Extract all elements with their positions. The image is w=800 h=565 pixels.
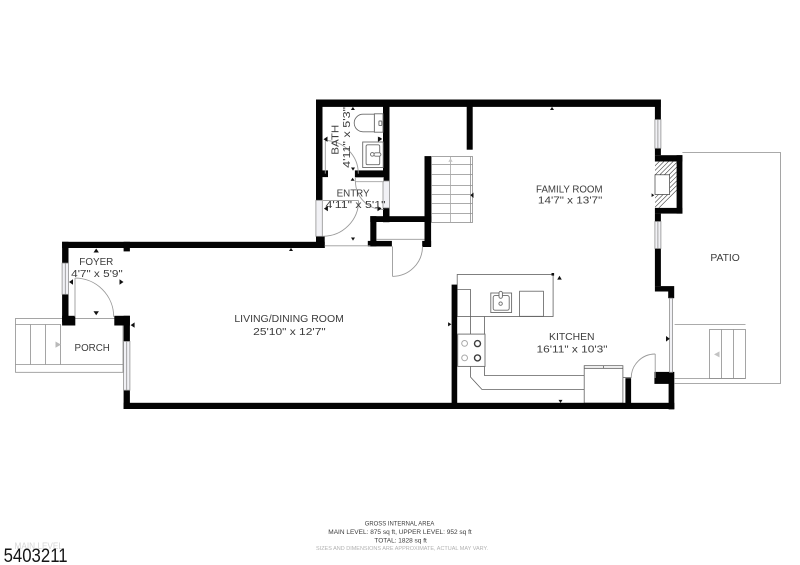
svg-text:LIVING/DINING ROOM: LIVING/DINING ROOM: [234, 314, 344, 325]
svg-text:4'11" x 5'1": 4'11" x 5'1": [326, 200, 387, 211]
svg-text:SIZES AND DIMENSIONS ARE APPRO: SIZES AND DIMENSIONS ARE APPROXIMATE, AC…: [316, 546, 488, 552]
svg-text:25'10" x 12'7": 25'10" x 12'7": [253, 327, 326, 338]
svg-text:14'7" x 13'7": 14'7" x 13'7": [538, 195, 603, 206]
svg-text:ENTRY: ENTRY: [337, 188, 370, 199]
svg-text:16'11" x 10'3": 16'11" x 10'3": [537, 344, 609, 355]
svg-text:MAIN LEVEL: 875 sq ft, UPPER L: MAIN LEVEL: 875 sq ft, UPPER LEVEL: 952 …: [328, 529, 472, 536]
svg-text:KITCHEN: KITCHEN: [549, 332, 595, 343]
svg-text:BATH: BATH: [330, 125, 341, 155]
svg-text:5403211: 5403211: [4, 545, 68, 565]
svg-text:4'11" x 5'3": 4'11" x 5'3": [342, 106, 353, 168]
svg-text:FAMILY ROOM: FAMILY ROOM: [536, 184, 603, 195]
svg-text:FOYER: FOYER: [79, 257, 113, 268]
svg-text:4'7" x 5'9": 4'7" x 5'9": [71, 269, 123, 280]
svg-text:PATIO: PATIO: [710, 253, 740, 264]
svg-text:GROSS INTERNAL AREA: GROSS INTERNAL AREA: [365, 521, 435, 528]
svg-text:PORCH: PORCH: [75, 343, 110, 354]
svg-text:TOTAL: 1828 sq ft: TOTAL: 1828 sq ft: [374, 538, 427, 545]
